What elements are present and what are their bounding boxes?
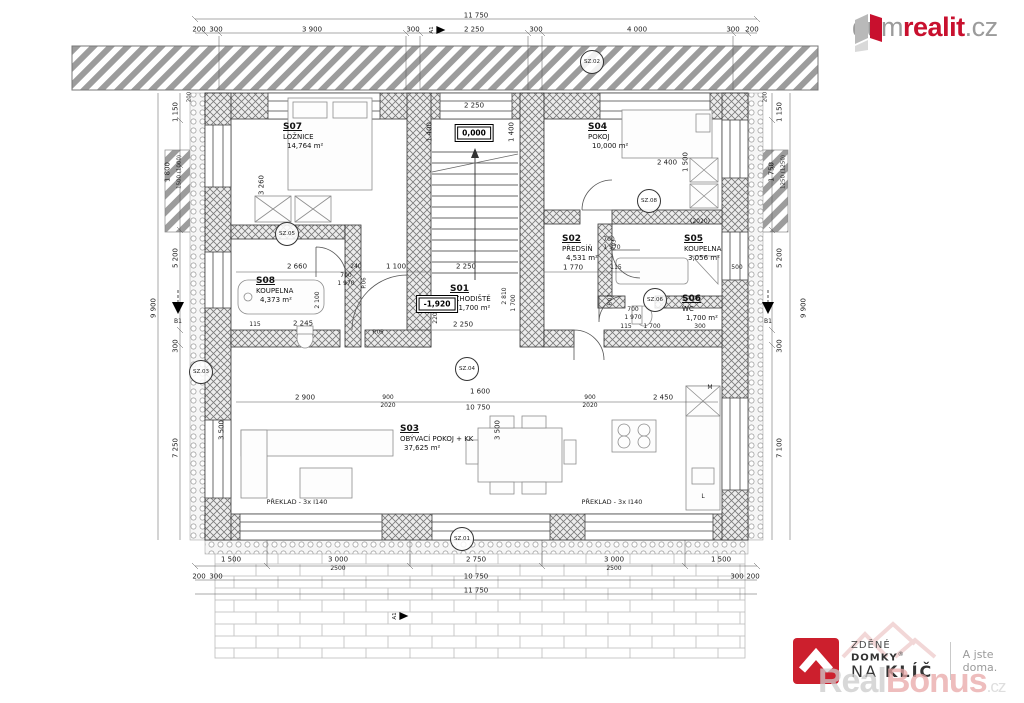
room-label: S02PŘEDSÍŇ4,531 m² bbox=[562, 234, 598, 263]
dimension-label: 3 000 bbox=[328, 557, 348, 564]
room-name: LOŽNICE bbox=[283, 133, 323, 142]
section-flag: A1 bbox=[428, 26, 445, 34]
room-id: S07 bbox=[283, 122, 323, 133]
room-area: 4,531 m² bbox=[562, 254, 598, 263]
section-flag-icon bbox=[437, 26, 446, 34]
dimension-label: 2 810 bbox=[502, 287, 508, 304]
dimension-label: (2020) bbox=[690, 219, 710, 225]
dimension-label: 1 970 bbox=[624, 315, 641, 321]
dimension-label: 1 500 bbox=[221, 557, 241, 564]
room-area: 1,700 m² bbox=[682, 314, 718, 323]
dimension-label: 220 bbox=[433, 312, 439, 323]
dimension-label: 9 900 bbox=[151, 298, 158, 318]
room-id: S06 bbox=[682, 294, 718, 305]
room-name: WC bbox=[682, 305, 718, 314]
registered-mark: ® bbox=[898, 651, 905, 658]
detail-marker-sz-08: SZ.08 bbox=[637, 189, 661, 213]
detail-marker-sz-05: SZ.05 bbox=[275, 222, 299, 246]
dimension-label: 2500 bbox=[606, 566, 621, 572]
room-name: OBÝVACÍ POKOJ + KK bbox=[400, 435, 473, 444]
room-area: 37,625 m² bbox=[400, 444, 473, 453]
room-label: S03OBÝVACÍ POKOJ + KK37,625 m² bbox=[400, 424, 473, 453]
realbonus-bonus: Bonus bbox=[886, 662, 987, 700]
room-name: KOUPELNA bbox=[256, 287, 293, 296]
dimension-label: 3 500 bbox=[219, 420, 226, 440]
dimension-label: 200 bbox=[192, 27, 205, 34]
naklic-line1-a: ZDĚNÉ bbox=[851, 640, 891, 651]
realbonus-watermark: RealBonus.cz bbox=[818, 662, 1005, 701]
dimension-label: 1 770 bbox=[563, 265, 583, 272]
dimension-label: 3 260 bbox=[259, 175, 266, 195]
dimension-label: 200 bbox=[192, 574, 205, 581]
dimension-label: PŘEKLAD - 3x I140 bbox=[267, 499, 328, 506]
dimension-label: 200 bbox=[745, 27, 758, 34]
dimension-label: 200 bbox=[746, 574, 759, 581]
room-id: S08 bbox=[256, 276, 293, 287]
room-id: S04 bbox=[588, 122, 628, 133]
floor-plan-page: 11 7502003003 9003002 2503004 0003002001… bbox=[0, 0, 1024, 703]
dimension-label: B1 bbox=[174, 319, 182, 325]
room-area: 4,373 m² bbox=[256, 296, 293, 305]
dimension-label: 1 150 bbox=[173, 102, 180, 122]
dimension-label: 11 750 bbox=[464, 13, 489, 20]
dimension-label: 1 500 bbox=[711, 557, 731, 564]
dimension-label: 1250 (1250) bbox=[781, 155, 787, 189]
dimension-label: 2 100 bbox=[315, 291, 321, 308]
dimension-label: 2 900 bbox=[295, 395, 315, 402]
section-flag-label: A1 bbox=[392, 612, 398, 619]
dimension-label: L bbox=[701, 494, 704, 500]
room-label: S04POKOJ10,000 m² bbox=[588, 122, 628, 151]
room-id: S05 bbox=[684, 234, 721, 245]
dimension-label: 1 600 bbox=[470, 389, 490, 396]
dimension-label: PŘEKLAD - 3x I140 bbox=[582, 499, 643, 506]
dimension-label: 300 bbox=[209, 574, 222, 581]
dimension-label: 2020 bbox=[582, 403, 597, 409]
room-area: 10,000 m² bbox=[588, 142, 628, 151]
dimension-label: P.06 bbox=[362, 277, 368, 288]
dimension-label: 300 bbox=[694, 324, 705, 330]
dimension-label: M bbox=[707, 385, 712, 391]
dimension-label: 500 bbox=[731, 265, 742, 271]
room-label: S08KOUPELNA4,373 m² bbox=[256, 276, 293, 305]
realbonus-real: Real bbox=[818, 662, 886, 700]
dimension-label: 700 bbox=[627, 307, 638, 313]
dimension-label: 2 250 bbox=[453, 322, 473, 329]
room-label: S05KOUPELNA3,056 m² bbox=[684, 234, 721, 263]
dimension-label: 1 700 bbox=[511, 294, 517, 311]
dimension-label: P.03 bbox=[612, 239, 618, 250]
dimension-label: 10 750 bbox=[464, 574, 489, 581]
dimension-label: 2 660 bbox=[287, 264, 307, 271]
room-name: KOUPELNA bbox=[684, 245, 721, 254]
dimension-label: 3 900 bbox=[302, 27, 322, 34]
dimension-label: 700 bbox=[340, 273, 351, 279]
dimension-label: P.05 bbox=[372, 330, 383, 336]
dimension-label: 900 bbox=[584, 395, 595, 401]
dimension-label: 300 bbox=[777, 339, 784, 352]
dimension-label: 240 bbox=[350, 264, 361, 270]
dimension-label: 300 bbox=[730, 574, 743, 581]
room-label: S07LOŽNICE14,764 m² bbox=[283, 122, 323, 151]
dimension-label: 5 200 bbox=[777, 248, 784, 268]
room-name: SCHODIŠTĚ bbox=[450, 295, 491, 304]
dimension-label: 7 100 bbox=[777, 438, 784, 458]
dimension-label: 1 800 bbox=[165, 162, 172, 182]
dimension-label: 2 245 bbox=[293, 321, 313, 328]
room-label: S01SCHODIŠTĚ11,700 m² bbox=[450, 284, 491, 313]
dimension-label: 1 500 bbox=[683, 152, 690, 172]
dimension-label: 2 250 bbox=[464, 103, 484, 110]
dimension-label: 2 750 bbox=[466, 557, 486, 564]
dimension-label: P.07 bbox=[608, 294, 614, 305]
dimension-label: 7 250 bbox=[173, 438, 180, 458]
dimension-label: 200 bbox=[187, 92, 193, 103]
dimension-label: 300 bbox=[726, 27, 739, 34]
detail-marker-sz-06: SZ.06 bbox=[643, 288, 667, 312]
detail-marker-sz-04: SZ.04 bbox=[455, 357, 479, 381]
dimension-label: 200 bbox=[763, 92, 769, 103]
room-id: S03 bbox=[400, 424, 473, 435]
detail-marker-sz-02: SZ.02 bbox=[580, 50, 604, 74]
dimension-label: 300 bbox=[529, 27, 542, 34]
dimension-label: 1 750 bbox=[769, 162, 776, 182]
realbonus-cz: .cz bbox=[987, 677, 1006, 696]
logo-text-cz: .cz bbox=[965, 12, 998, 42]
dimension-label: 1 150 bbox=[777, 102, 784, 122]
dimension-label: 300 bbox=[406, 27, 419, 34]
detail-marker-sz-03: SZ.03 bbox=[189, 360, 213, 384]
dimension-label: 3 000 bbox=[604, 557, 624, 564]
dumrealit-logo[interactable]: dumrealit.cz bbox=[852, 12, 998, 43]
room-area: 14,764 m² bbox=[283, 142, 323, 151]
dimension-label: 1 400 bbox=[427, 122, 434, 142]
dimension-label: 1 700 bbox=[643, 324, 660, 330]
dimension-label: 115 bbox=[610, 265, 621, 271]
room-id: S01 bbox=[450, 284, 491, 295]
dimension-label: 1500 (1000) bbox=[177, 155, 183, 189]
dimension-label: 9 900 bbox=[801, 298, 808, 318]
dimension-label: 115 bbox=[620, 324, 631, 330]
dimension-label: B1 bbox=[764, 319, 772, 325]
dimension-label: 115 bbox=[249, 322, 260, 328]
dimension-label: 300 bbox=[173, 339, 180, 352]
dimension-label: 2 450 bbox=[653, 395, 673, 402]
level-mark: 0,000 bbox=[457, 127, 491, 140]
dimension-label: 5 200 bbox=[173, 248, 180, 268]
room-name: PŘEDSÍŇ bbox=[562, 245, 598, 254]
dimension-label: 2500 bbox=[330, 566, 345, 572]
dimension-label: 3 500 bbox=[495, 420, 502, 440]
dimension-label: 1 970 bbox=[337, 281, 354, 287]
detail-marker-sz-01: SZ.01 bbox=[450, 527, 474, 551]
dimension-label: 300 bbox=[209, 27, 222, 34]
dimension-label: 2020 bbox=[380, 403, 395, 409]
section-flag-label: A1 bbox=[429, 26, 435, 33]
dimension-label: 4 000 bbox=[627, 27, 647, 34]
room-area: 3,056 m² bbox=[684, 254, 721, 263]
section-flag-icon bbox=[400, 612, 409, 620]
dimension-label: 10 750 bbox=[466, 405, 491, 412]
dimension-label: 2 250 bbox=[464, 27, 484, 34]
room-label: S06WC1,700 m² bbox=[682, 294, 718, 323]
dumrealit-logo-icon bbox=[852, 12, 886, 52]
logo-text-realit: realit bbox=[903, 12, 965, 42]
dimension-label: 2 250 bbox=[456, 264, 476, 271]
room-name: POKOJ bbox=[588, 133, 628, 142]
plan-annotations: 11 7502003003 9003002 2503004 0003002001… bbox=[0, 0, 1024, 703]
dimension-label: 900 bbox=[382, 395, 393, 401]
level-mark: -1,920 bbox=[419, 298, 456, 311]
dimension-label: 1 400 bbox=[509, 122, 516, 142]
dimension-label: 2 400 bbox=[657, 160, 677, 167]
dimension-label: 11 750 bbox=[464, 588, 489, 595]
dimension-label: 1 100 bbox=[386, 264, 406, 271]
room-id: S02 bbox=[562, 234, 598, 245]
section-flag: A1 bbox=[391, 612, 408, 620]
room-area: 11,700 m² bbox=[450, 304, 491, 313]
